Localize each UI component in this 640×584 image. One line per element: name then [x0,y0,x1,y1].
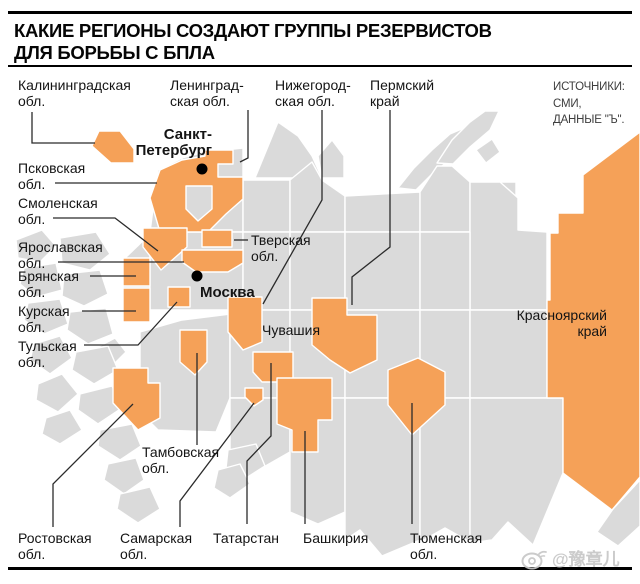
base-region [42,410,82,444]
kaliningrad-region [92,131,134,163]
kaliningrad-label: Калининградскаяобл. [18,77,131,109]
perm-label: Пермскийкрай [370,77,434,109]
samara-label: Самарскаяобл. [120,530,192,562]
watermark-text: @豫章儿 [552,545,620,570]
base-region [104,458,144,494]
moscow-label: Москва [200,284,255,301]
infographic-root: КАКИЕ РЕГИОНЫ СОЗДАЮТ ГРУППЫ РЕЗЕРВИСТОВ… [0,0,640,584]
tambov-label: Тамбовскаяобл. [142,444,219,476]
russia-regions-map: Калининградскаяобл.Ленинград-ская обл.Ни… [0,0,640,584]
kaliningrad-leader-line [32,112,95,143]
smolensk-label: Смоленскаяобл. [18,195,98,227]
chuvashia-label: Чувашия [262,322,320,338]
base-region [345,232,420,310]
base-region [72,346,118,384]
pskov-label: Псковскаяобл. [18,160,85,192]
base-region [98,424,141,460]
base-region [243,180,290,232]
tver-region [202,230,232,247]
base-region [345,192,420,232]
base-region [420,232,470,310]
base-region [476,139,500,163]
kursk-region [123,288,150,322]
tula-region [168,287,190,307]
rostov-label: Ростовскаяобл. [18,530,92,562]
bashkiria-label: Башкирия [303,530,368,546]
leningrad-label: Ленинград-ская обл. [170,77,244,109]
yaroslavl-region [182,250,243,272]
tatarstan-label: Татарстан [213,530,279,546]
tyumen-label: Тюменскаяобл. [410,530,482,562]
base-region [36,374,78,412]
moscow-city-dot [192,271,203,282]
weibo-watermark: @豫章儿 [521,545,620,570]
spb-label: Санкт-Петербург [136,126,212,159]
base-region [470,398,563,545]
base-region [470,182,547,310]
spb-city-dot [197,164,208,175]
weibo-eye-icon [521,546,549,570]
base-region [470,310,547,398]
nizhegorod-label: Нижегород-ская обл. [275,77,351,109]
